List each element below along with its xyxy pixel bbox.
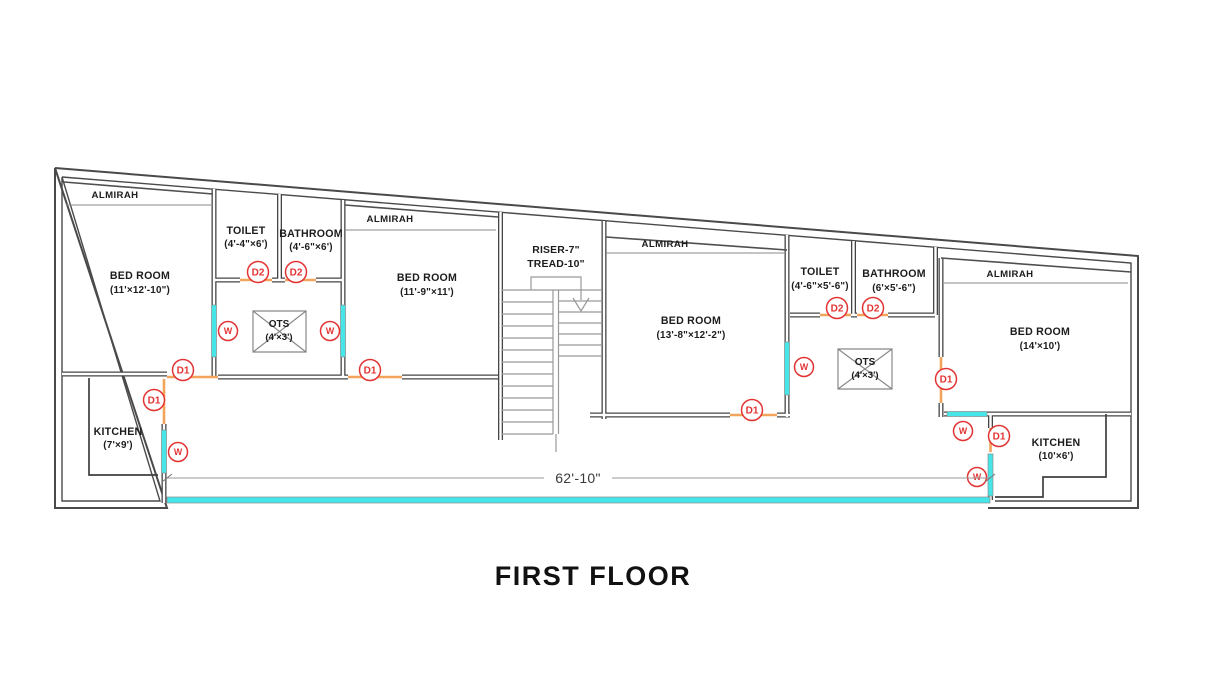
room-top-walls xyxy=(64,182,1131,272)
room-bedroom-4: BED ROOM (14'×10') xyxy=(1010,326,1070,352)
bathroom1-name: BATHROOM xyxy=(279,228,343,240)
interior-wall-outer xyxy=(62,189,1131,503)
almirah-label-3: ALMIRAH xyxy=(641,239,688,250)
window-kitchen-right xyxy=(988,454,993,496)
dimension-text: 62'-10" xyxy=(555,470,601,486)
terrace-railing xyxy=(167,497,990,503)
svg-text:D1: D1 xyxy=(940,374,953,385)
stair-tread-label: TREAD-10" xyxy=(527,259,585,270)
stair-direction-arrow xyxy=(531,277,589,311)
room-labels: BED ROOM (11'×12'-10") TOILET (4'-4"×6')… xyxy=(94,225,1081,462)
bedroom1-size: (11'×12'-10") xyxy=(110,285,170,296)
bedroom1-name: BED ROOM xyxy=(110,270,170,282)
almirah-label-2: ALMIRAH xyxy=(366,214,413,225)
svg-text:W: W xyxy=(174,447,183,457)
kitchen-right-name: KITCHEN xyxy=(1032,437,1081,449)
kitchen-left-size: (7'×9') xyxy=(103,440,132,451)
floor-plan-canvas: ALMIRAH ALMIRAH ALMIRAH ALMIRAH RISER-7"… xyxy=(0,0,1217,686)
window-kitchen-left xyxy=(162,430,167,473)
room-toilet-1: TOILET (4'-4"×6') xyxy=(224,225,268,250)
svg-text:D2: D2 xyxy=(290,267,303,278)
svg-text:D2: D2 xyxy=(831,303,844,314)
bathroom1-size: (4'-6"×6') xyxy=(289,242,333,253)
svg-text:D1: D1 xyxy=(993,431,1006,442)
svg-text:D1: D1 xyxy=(364,365,377,376)
ots2-box xyxy=(838,349,892,389)
marker-d1: D1 xyxy=(144,390,165,411)
marker-d2: D2 xyxy=(248,262,269,283)
room-kitchen-left: KITCHEN (7'×9') xyxy=(94,426,143,451)
ots-1: OTS (4'×3') xyxy=(253,311,306,352)
outer-boundary xyxy=(55,168,1138,508)
dimension-annotation: 62'-10" xyxy=(162,470,995,486)
svg-text:W: W xyxy=(800,362,809,372)
svg-text:D2: D2 xyxy=(252,267,265,278)
svg-text:D1: D1 xyxy=(148,395,161,406)
almirah-label-1: ALMIRAH xyxy=(91,190,138,201)
almirah-bands: ALMIRAH ALMIRAH ALMIRAH ALMIRAH xyxy=(66,190,1128,283)
room-kitchen-right: KITCHEN (10'×6') xyxy=(1032,437,1081,462)
svg-text:W: W xyxy=(224,326,233,336)
svg-text:D1: D1 xyxy=(177,365,190,376)
marker-w: W xyxy=(954,422,973,441)
room-bathroom-2: BATHROOM (6'×5'-6") xyxy=(862,268,926,294)
marker-d1: D1 xyxy=(936,369,957,390)
bedroom3-name: BED ROOM xyxy=(661,315,721,327)
stair-divider xyxy=(553,290,559,452)
marker-w: W xyxy=(795,358,814,377)
room-bedroom-2: BED ROOM (11'-9"×11') xyxy=(397,272,457,298)
marker-w: W xyxy=(321,322,340,341)
marker-d1: D1 xyxy=(173,360,194,381)
window-bedroom3 xyxy=(785,342,790,395)
bedroom4-name: BED ROOM xyxy=(1010,326,1070,338)
ots1-size: (4'×3') xyxy=(265,332,292,343)
bedroom4-size: (14'×10') xyxy=(1020,341,1061,352)
toilet1-name: TOILET xyxy=(227,225,266,237)
bathroom2-name: BATHROOM xyxy=(862,268,926,280)
window-bedroom4 xyxy=(947,412,987,417)
kitchen-right-size: (10'×6') xyxy=(1038,451,1073,462)
room-bathroom-1: BATHROOM (4'-6"×6') xyxy=(279,228,343,253)
almirah-label-4: ALMIRAH xyxy=(986,269,1033,280)
marker-w: W xyxy=(968,468,987,487)
svg-text:W: W xyxy=(959,426,968,436)
svg-text:W: W xyxy=(973,472,982,482)
marker-w: W xyxy=(169,443,188,462)
window-bedroom1 xyxy=(212,305,217,357)
room-bedroom-3: BED ROOM (13'-8"×12'-2") xyxy=(657,315,726,341)
toilet1-size: (4'-4"×6') xyxy=(224,239,268,250)
svg-text:W: W xyxy=(326,326,335,336)
ots-2: OTS (4'×3') xyxy=(838,349,892,389)
window-markers-w: W W W W W W xyxy=(169,322,987,487)
room-bedroom-1: BED ROOM (11'×12'-10") xyxy=(110,270,170,296)
window-bedroom2 xyxy=(341,305,346,357)
svg-text:D2: D2 xyxy=(867,303,880,314)
bedroom2-name: BED ROOM xyxy=(397,272,457,284)
toilet2-size: (4'-6"×5'-6") xyxy=(791,281,849,292)
interior-wall-core xyxy=(62,189,1131,503)
ots2-size: (4'×3') xyxy=(851,370,878,381)
interior-walls xyxy=(62,182,1131,503)
bedroom3-size: (13'-8"×12'-2") xyxy=(657,330,726,341)
room-toilet-2: TOILET (4'-6"×5'-6") xyxy=(791,266,849,292)
marker-w: W xyxy=(219,322,238,341)
kitchen-left-name: KITCHEN xyxy=(94,426,143,438)
floor-plan-drawing: ALMIRAH ALMIRAH ALMIRAH ALMIRAH RISER-7"… xyxy=(0,0,1217,686)
marker-d1: D1 xyxy=(742,400,763,421)
door-markers-d1: D1 D1 D1 D1 D1 D1 xyxy=(144,360,1010,447)
outer-wall-outline xyxy=(55,168,1138,508)
ots1-name: OTS xyxy=(269,319,290,330)
ots2-name: OTS xyxy=(855,357,876,368)
bathroom2-size: (6'×5'-6") xyxy=(872,283,916,294)
marker-d1: D1 xyxy=(360,360,381,381)
marker-d1: D1 xyxy=(989,426,1010,447)
toilet2-name: TOILET xyxy=(801,266,840,278)
stair-riser-label: RISER-7" xyxy=(532,245,580,256)
bedroom2-size: (11'-9"×11') xyxy=(400,287,454,298)
svg-text:D1: D1 xyxy=(746,405,759,416)
marker-d2: D2 xyxy=(863,298,884,319)
plan-title: FIRST FLOOR xyxy=(495,561,691,591)
marker-d2: D2 xyxy=(827,298,848,319)
marker-d2: D2 xyxy=(286,262,307,283)
staircase: RISER-7" TREAD-10" xyxy=(502,245,602,452)
